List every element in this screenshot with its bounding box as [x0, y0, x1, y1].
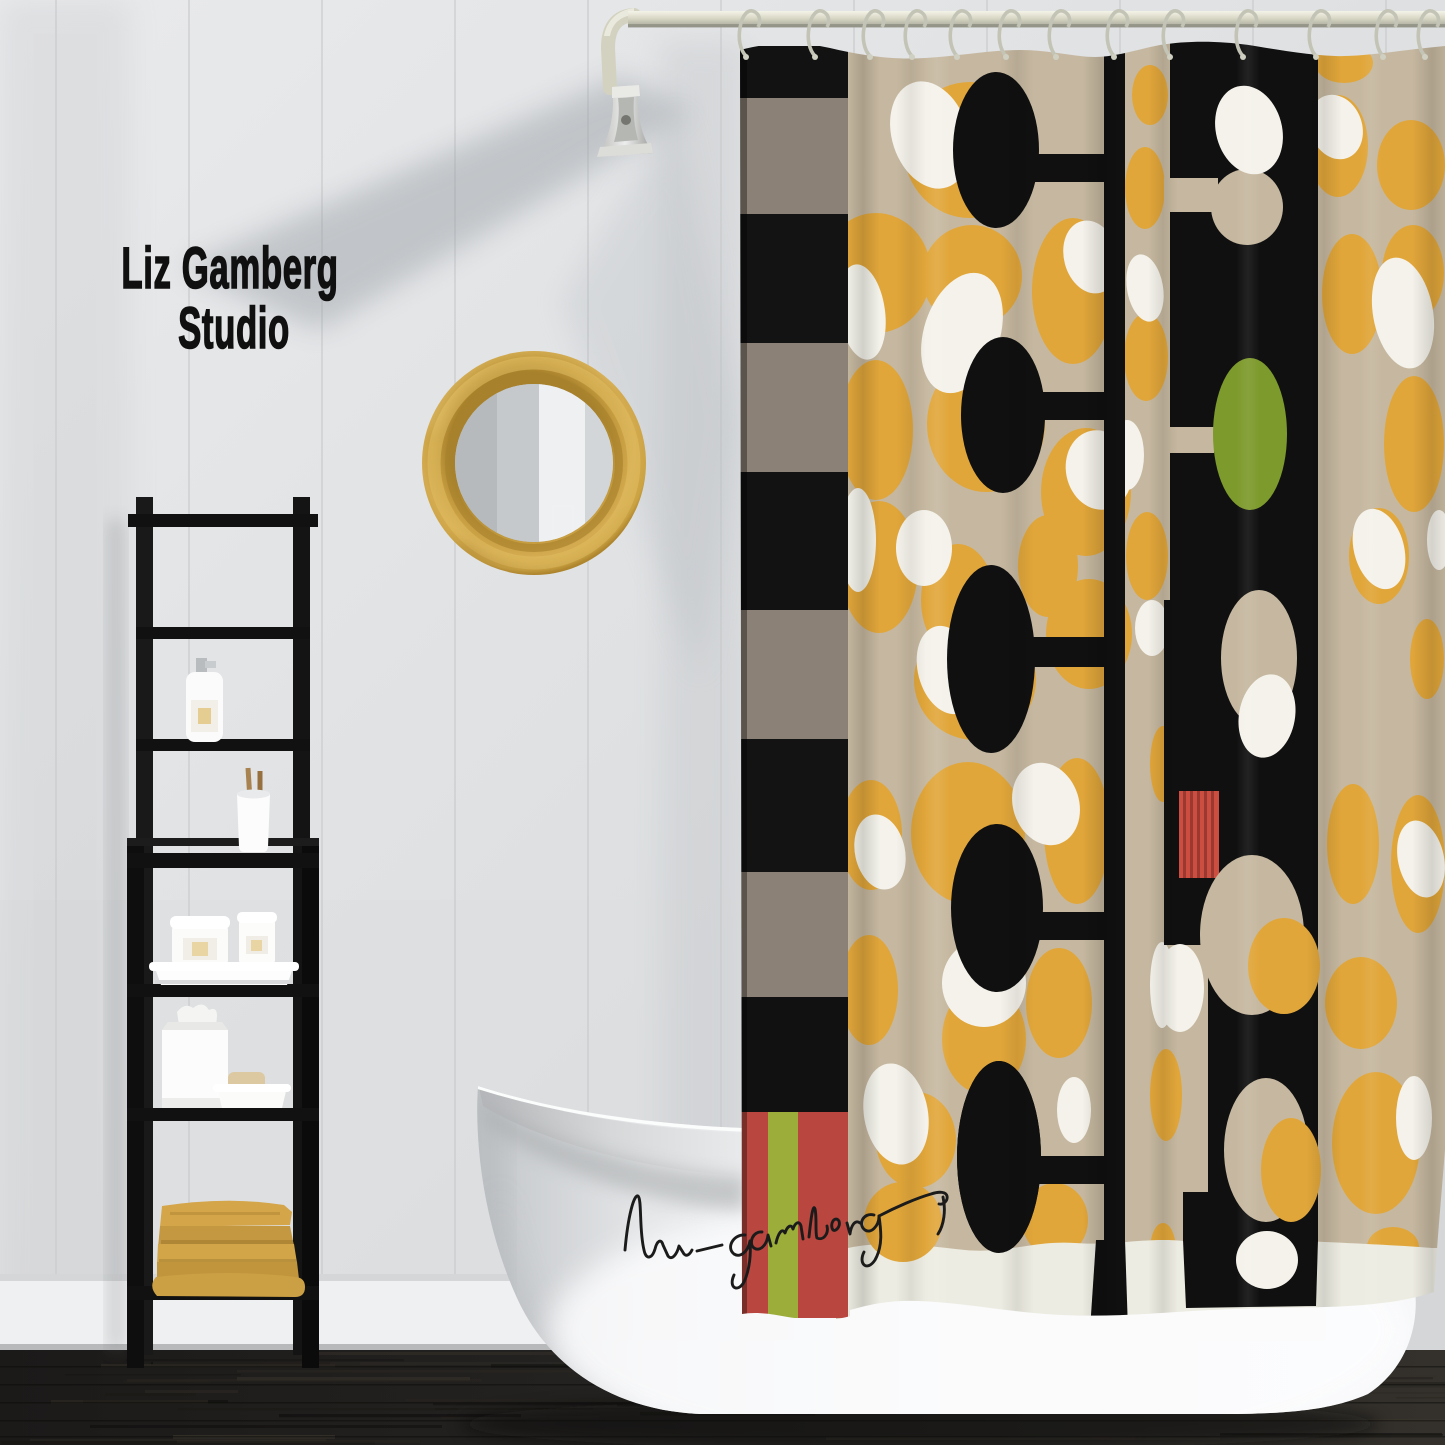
- svg-text:Studio: Studio: [178, 297, 290, 361]
- svg-text:Liz Gamberg: Liz Gamberg: [121, 237, 338, 301]
